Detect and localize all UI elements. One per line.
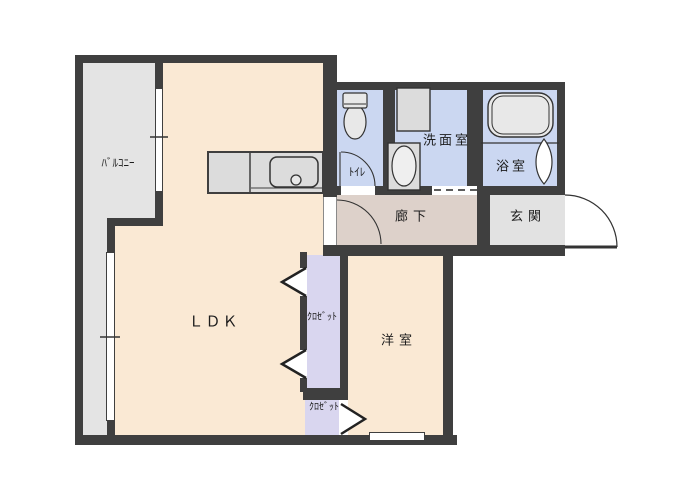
window-balcony-lower: [106, 252, 115, 421]
wall-closet-left-b: [300, 296, 307, 350]
label-balcony: ﾊﾞﾙｺﾆｰ: [102, 158, 135, 169]
wall-left: [75, 55, 83, 445]
wall-balcony-stub-b2: [107, 421, 115, 437]
wall-western-closet: [340, 252, 348, 390]
opening-washroom-sliding: [432, 186, 477, 195]
window-balcony-upper: [155, 88, 163, 192]
wall-closet-divider: [303, 388, 348, 400]
wall-balcony-stub-top: [155, 63, 163, 88]
wall-bath-right: [557, 82, 565, 193]
entrance-door-arc: [565, 195, 617, 247]
floor-plan: ﾊﾞﾙｺﾆｰ ＬＤＫ ﾄｲﾚ 洗面室 浴室 廊下 玄関 洋室 ｸﾛｾﾞｯﾄ ｸﾛ…: [0, 0, 685, 499]
label-bathroom: 浴室: [496, 161, 528, 174]
opening-hallway-ldk-door: [323, 197, 337, 245]
wall-balcony-stub-b1: [107, 226, 115, 252]
label-western-room: 洋室: [381, 335, 417, 348]
opening-closet-upper-1: [300, 268, 307, 296]
room-balcony-strip: [83, 218, 107, 437]
wall-toilet-washroom: [383, 88, 395, 186]
label-toilet: ﾄｲﾚ: [349, 167, 366, 178]
window-western-bottom: [369, 432, 425, 441]
label-hallway: 廊下: [395, 211, 431, 224]
wall-closet-left-c: [300, 378, 307, 392]
wall-ldk-right: [323, 55, 337, 197]
wall-western-right: [443, 245, 453, 440]
label-entrance: 玄関: [510, 211, 546, 224]
room-balcony: [83, 63, 155, 218]
wall-waterblock-top: [337, 82, 565, 90]
wall-balcony-step: [107, 218, 163, 226]
wall-closet-left-a: [300, 252, 307, 268]
opening-closet-lower: [339, 400, 348, 435]
wall-top: [75, 55, 337, 63]
label-closet-lower: ｸﾛｾﾞｯﾄ: [309, 403, 339, 413]
label-ldk: ＬＤＫ: [188, 315, 239, 330]
label-washroom: 洗面室: [423, 135, 471, 148]
opening-closet-upper-2: [300, 350, 307, 378]
label-closet-upper: ｸﾛｾﾞｯﾄ: [307, 313, 337, 323]
wall-hall-entrance: [477, 193, 490, 245]
opening-toilet-door: [341, 186, 375, 195]
